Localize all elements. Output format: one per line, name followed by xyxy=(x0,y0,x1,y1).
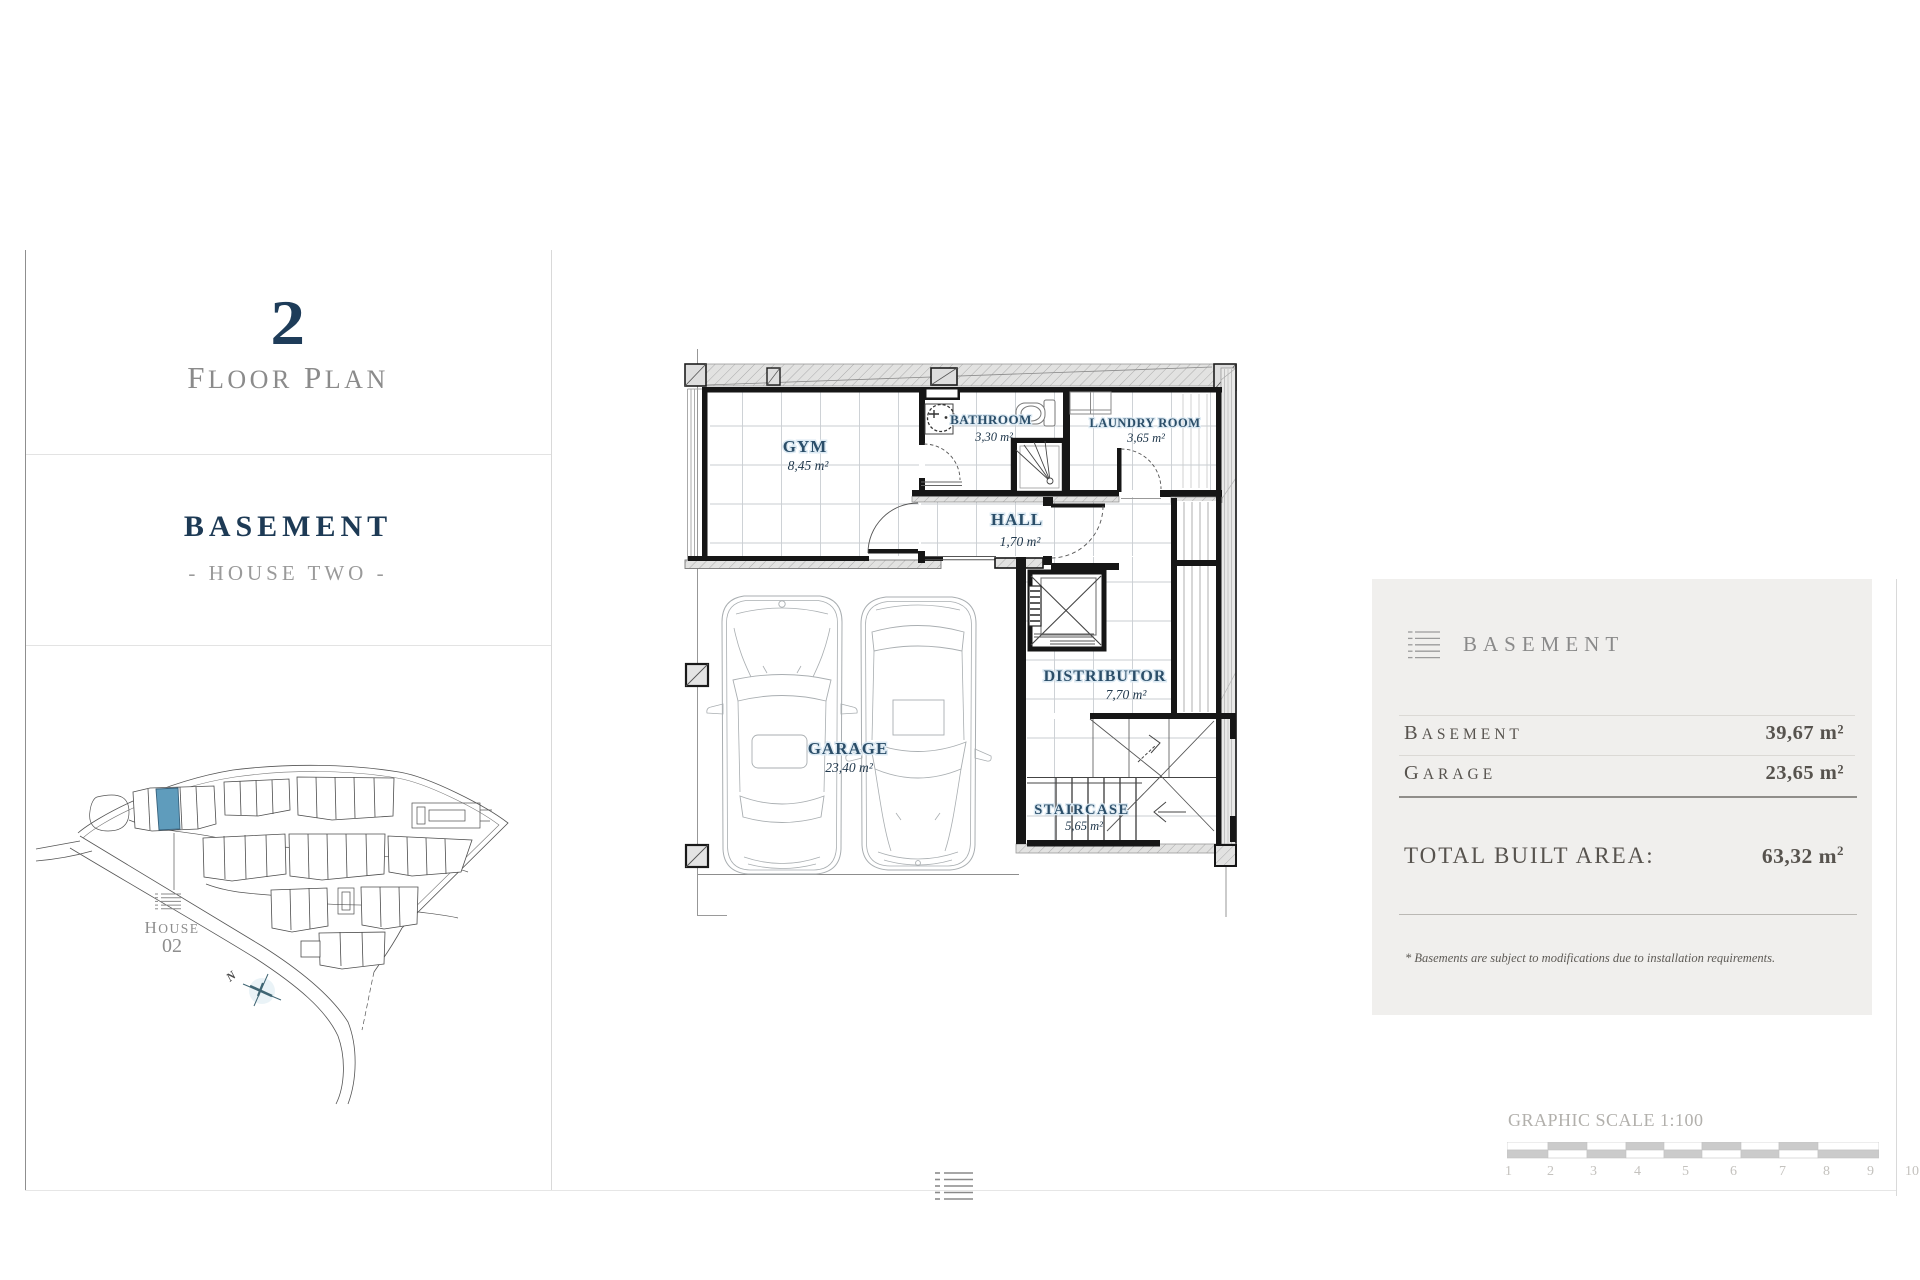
svg-text:02: 02 xyxy=(162,935,182,957)
svg-text:BATHROOM: BATHROOM xyxy=(950,412,1032,427)
svg-text:LAUNDRY ROOM: LAUNDRY ROOM xyxy=(1090,416,1201,430)
svg-text:DISTRIBUTOR: DISTRIBUTOR xyxy=(1044,668,1167,685)
svg-text:3,30 m²: 3,30 m² xyxy=(974,430,1013,444)
svg-text:GYM: GYM xyxy=(783,437,828,456)
svg-text:7,70 m²: 7,70 m² xyxy=(1106,687,1148,702)
svg-text:1,70 m²: 1,70 m² xyxy=(1000,534,1042,549)
svg-text:5,65 m²: 5,65 m² xyxy=(1065,819,1103,833)
svg-text:8,45 m²: 8,45 m² xyxy=(788,458,830,473)
svg-text:HALL: HALL xyxy=(991,510,1043,529)
svg-text:GARAGE: GARAGE xyxy=(808,739,889,758)
svg-text:23,40 m²: 23,40 m² xyxy=(825,760,873,775)
svg-text:N: N xyxy=(222,967,239,985)
svg-text:STAIRCASE: STAIRCASE xyxy=(1034,802,1129,818)
svg-text:3,65 m²: 3,65 m² xyxy=(1126,431,1165,445)
